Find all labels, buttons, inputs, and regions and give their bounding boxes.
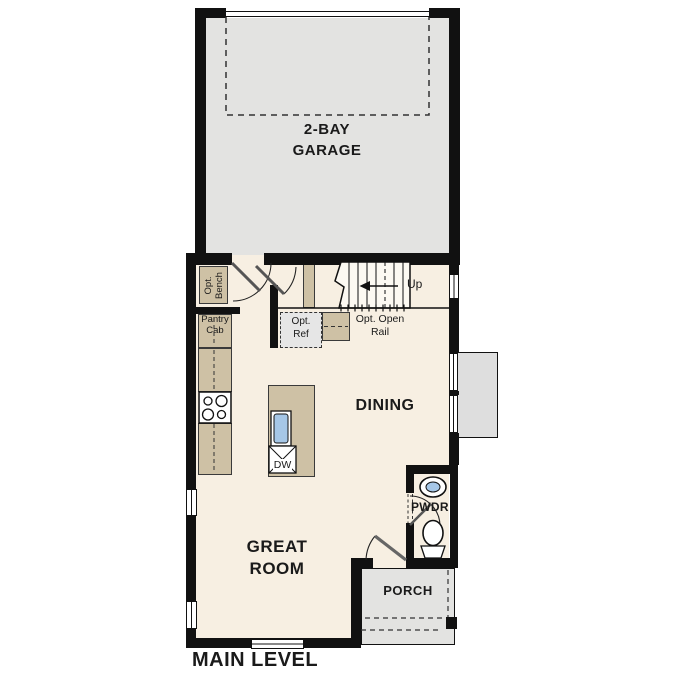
plan-symbols [0,0,687,687]
up-label: Up [407,277,422,291]
bathroom-sink-icon [420,477,446,497]
garage-door-dashed-outline [226,17,429,115]
porch-steps-dashed [361,570,457,630]
opt-bench-text: Opt. Bench [204,272,225,299]
dining-label: DINING [330,397,440,415]
powder-label: PWDR [411,500,449,514]
garage-label: 2-BAY GARAGE [245,119,409,161]
kitchen-sink-icon [271,411,291,446]
opt-ref-label: Opt. Ref [280,316,322,341]
door-swing [256,266,296,294]
toilet-icon [421,521,445,559]
dishwasher-text: DW [273,459,293,471]
opt-open-rail-label: Opt. Open Rail [346,313,414,339]
front-door-swing [366,536,406,560]
door-swing [232,263,271,301]
dishwasher-label: DW [269,459,296,471]
stove-icon [199,392,231,423]
pantry-cab-label: Pantry Cab [196,314,234,336]
great-room-label: GREAT ROOM [200,536,354,580]
porch-label: PORCH [361,583,455,598]
stairs-icon [335,262,410,308]
floor-plan: 2-BAY GARAGE DINING GREAT ROOM MAIN LEVE… [0,0,687,687]
main-level-label: MAIN LEVEL [192,649,318,672]
opt-bench-label: Opt. Bench [192,264,236,306]
